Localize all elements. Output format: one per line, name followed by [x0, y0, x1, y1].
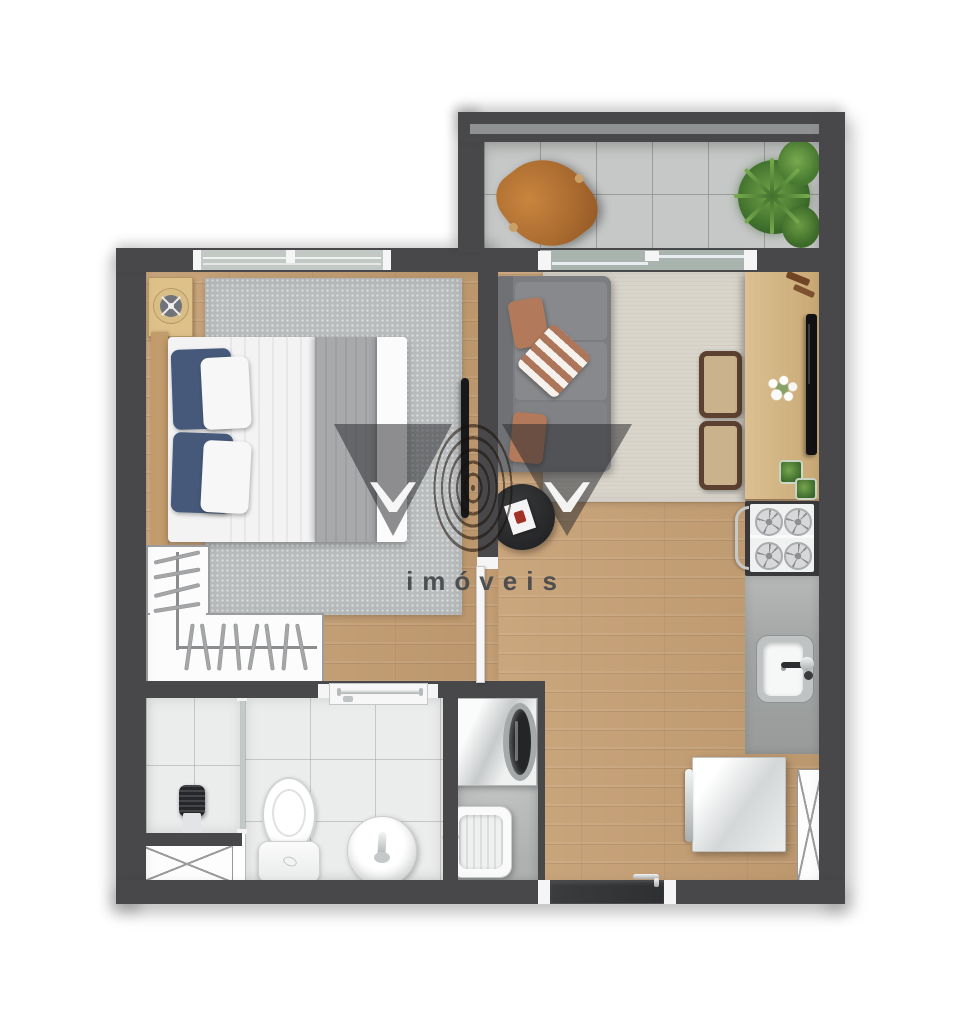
washer-door	[503, 703, 537, 781]
towel-bar-cap	[419, 688, 423, 696]
sliding-door-frame	[538, 251, 551, 270]
sliding-door-frame	[744, 250, 757, 270]
towel-bar-cap	[337, 688, 341, 696]
living-tv	[806, 314, 817, 455]
entry-door-jamb	[664, 880, 676, 904]
toilet-tank	[258, 841, 320, 883]
door-handle-hook	[343, 696, 353, 702]
flush-button	[282, 855, 298, 868]
sliding-door-meeting-stile	[645, 251, 659, 261]
fan-decor	[153, 288, 189, 324]
wall-laundry-top	[443, 681, 545, 698]
toilet-seat-line	[272, 789, 306, 837]
tub-ribbed-basin	[459, 815, 503, 869]
bathroom-door	[329, 683, 428, 705]
sliding-panel-rail	[552, 262, 648, 265]
utility-tub	[450, 806, 512, 878]
fan-hub	[168, 303, 174, 309]
dining-chair	[699, 421, 742, 490]
shower-glass-partition	[240, 698, 245, 833]
floor-plan-canvas: imóveis	[0, 0, 971, 1024]
shower-curb	[146, 833, 242, 846]
wall-right	[819, 112, 845, 903]
balcony-plant	[730, 140, 820, 250]
watermark-text: imóveis	[346, 566, 626, 597]
wall-bottom	[116, 880, 845, 904]
entry-door	[550, 882, 664, 903]
dining-chair	[699, 351, 742, 418]
hanger-rail-horizontal	[176, 646, 317, 649]
stove-burner	[784, 508, 812, 536]
tv-glint	[808, 324, 810, 384]
towel-bar	[340, 690, 420, 694]
sliding-panel-rail	[655, 255, 747, 258]
cooktop-divider	[750, 535, 814, 538]
stove-burner	[784, 542, 812, 570]
basin-faucet-base	[374, 852, 390, 863]
hanger-rail-vertical	[176, 552, 179, 650]
window-mullion	[286, 250, 295, 263]
stove-burner	[755, 542, 783, 570]
entry-door-jamb	[538, 880, 550, 904]
magazine-cover-art	[513, 510, 526, 525]
balcony-parapet	[458, 112, 843, 142]
cooktop-frame	[745, 501, 820, 576]
washing-machine	[452, 698, 537, 786]
bed-headboard	[151, 332, 168, 545]
kitchen-faucet-knob	[804, 671, 813, 680]
oven-handle	[735, 506, 749, 570]
plant-cube	[795, 478, 817, 500]
kitchen-faucet-base	[800, 657, 814, 671]
white-pillow	[200, 356, 252, 430]
white-flowers	[764, 374, 800, 406]
ventilation-shaft-bathroom	[141, 845, 233, 883]
refrigerator-handle	[685, 769, 693, 842]
parapet-rail	[470, 124, 831, 134]
washer-door-glint	[515, 721, 518, 761]
wall-laundry-right	[538, 681, 545, 883]
white-pillow	[200, 440, 252, 514]
shower-column-base	[183, 813, 201, 833]
window-frame-end	[193, 250, 201, 270]
stove-burner	[755, 508, 783, 536]
wall-bathroom-laundry	[443, 681, 458, 883]
bedside-table	[148, 277, 193, 337]
watermark-chevron	[544, 482, 590, 512]
refrigerator	[692, 757, 786, 852]
wall-left	[116, 248, 146, 903]
window-line	[203, 263, 381, 265]
window-frame-end	[383, 250, 391, 270]
entry-door-handle-stub	[654, 878, 659, 887]
bathroom-door-jamb	[427, 684, 438, 698]
watermark-fingerprint-wave	[433, 422, 513, 554]
